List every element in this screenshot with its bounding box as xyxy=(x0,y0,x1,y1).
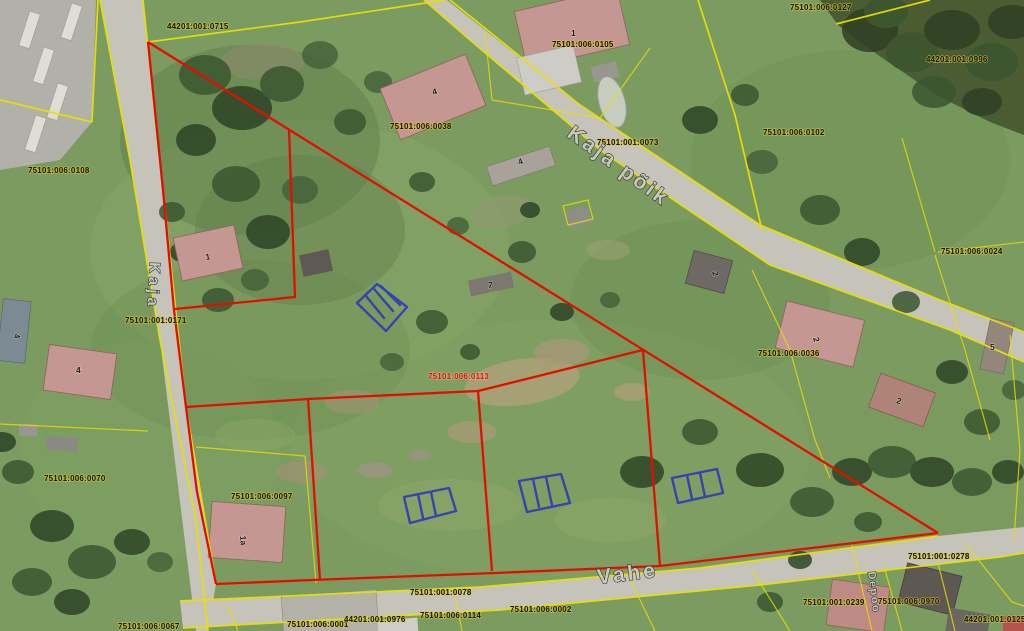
parcel-code-label: 75101:001:0078 xyxy=(410,588,472,597)
parcel-code-label: 75101:006:0108 xyxy=(28,166,90,175)
parcel-code-label: 75101:006:0002 xyxy=(510,605,572,614)
street-label-kaja: Kaja xyxy=(144,262,163,311)
building-number: 1 xyxy=(571,28,576,38)
parcel-code-label: 75101:006:0038 xyxy=(390,122,452,131)
building-number: 5 xyxy=(990,342,995,352)
parcel-code-label: 44201:001:0996 xyxy=(926,55,988,64)
parcel-code-label: 75101:006:0024 xyxy=(941,247,1003,256)
parcel-code-label: 75101:006:0036 xyxy=(758,349,820,358)
parcel-code-label: 44201:001:0715 xyxy=(167,22,229,31)
building-number: 4 xyxy=(76,365,81,375)
parcel-code-label: 75101:006:0105 xyxy=(552,40,614,49)
parcel-code-label: 75101:001:0239 xyxy=(803,598,865,607)
parcel-code-label: 44201:001:0125 xyxy=(964,615,1024,624)
building-number: 1a xyxy=(238,535,249,546)
shed xyxy=(46,436,79,452)
cadastral-map: 44201:001:0715 75101:006:0127 75101:006:… xyxy=(0,0,1024,631)
parcel-code-label: 75101:006:0127 xyxy=(790,3,852,12)
parcel-code-label: 75101:001:0171 xyxy=(125,316,187,325)
parcel-code-label: 75101:001:0278 xyxy=(908,552,970,561)
parcel-code-label: 75101:006:0097 xyxy=(231,492,293,501)
parcel-code-label: 75101:006:0067 xyxy=(118,622,180,631)
parcel-code-label: 75101:006:0001 xyxy=(287,620,349,629)
map-canvas[interactable]: 44201:001:0715 75101:006:0127 75101:006:… xyxy=(0,0,1024,631)
building-number: 7 xyxy=(488,280,493,290)
parcel-code-label: 75101:006:0114 xyxy=(420,611,481,620)
parcel-code-label: 75101:006:0102 xyxy=(763,128,825,137)
building-roof xyxy=(208,501,286,562)
parcel-code-label: 44201:001:0976 xyxy=(344,615,406,624)
parcel-code-label: 75101:006:0970 xyxy=(878,597,940,606)
selected-parcel-code-label: 75101:006:0113 xyxy=(428,372,489,381)
parcel-code-label: 75101:006:0070 xyxy=(44,474,106,483)
